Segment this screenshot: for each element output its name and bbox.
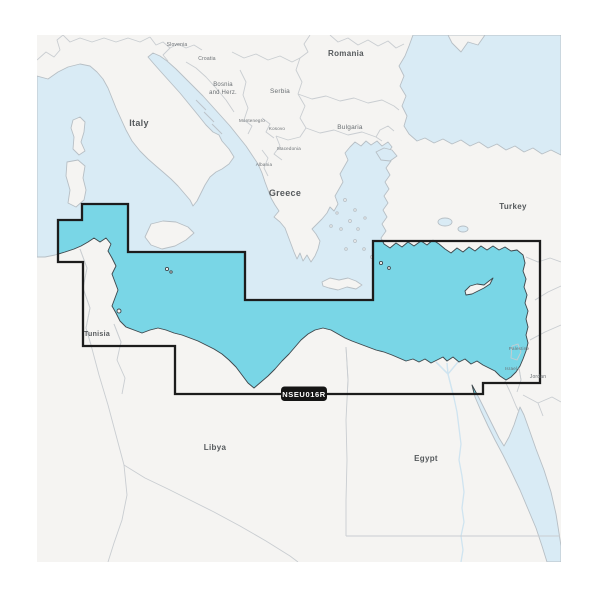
country-label-italy: Italy — [129, 118, 149, 128]
coverage-map: Slovenia Croatia Bosniaand Herz. Serbia … — [0, 0, 600, 600]
country-label-kosovo: Kosovo — [269, 126, 286, 131]
country-label-libya: Libya — [204, 443, 227, 452]
country-label-tunisia: Tunisia — [84, 331, 110, 338]
country-label-turkey: Turkey — [499, 202, 527, 211]
country-label-greece: Greece — [269, 188, 301, 198]
badge-code-text: NSEU016R — [282, 390, 326, 399]
country-label-montenegro: Montenegro — [239, 118, 265, 123]
country-label-macedonia: Macedonia — [277, 146, 301, 151]
country-label-romania: Romania — [328, 49, 364, 58]
country-label-bulgaria: Bulgaria — [337, 124, 363, 131]
country-label-albania: Albania — [256, 162, 273, 167]
country-label-israel: Israel — [505, 366, 517, 371]
country-label-jordan: Jordan — [530, 374, 547, 380]
country-label-palestine: Palestine — [509, 346, 530, 351]
country-label-egypt: Egypt — [414, 454, 438, 463]
country-label-serbia: Serbia — [270, 88, 290, 95]
product-coverage-image: Slovenia Croatia Bosniaand Herz. Serbia … — [0, 0, 600, 600]
country-label-slovenia: Slovenia — [167, 42, 188, 48]
product-code-badge: NSEU016R — [281, 387, 327, 402]
country-label-croatia: Croatia — [198, 56, 216, 62]
